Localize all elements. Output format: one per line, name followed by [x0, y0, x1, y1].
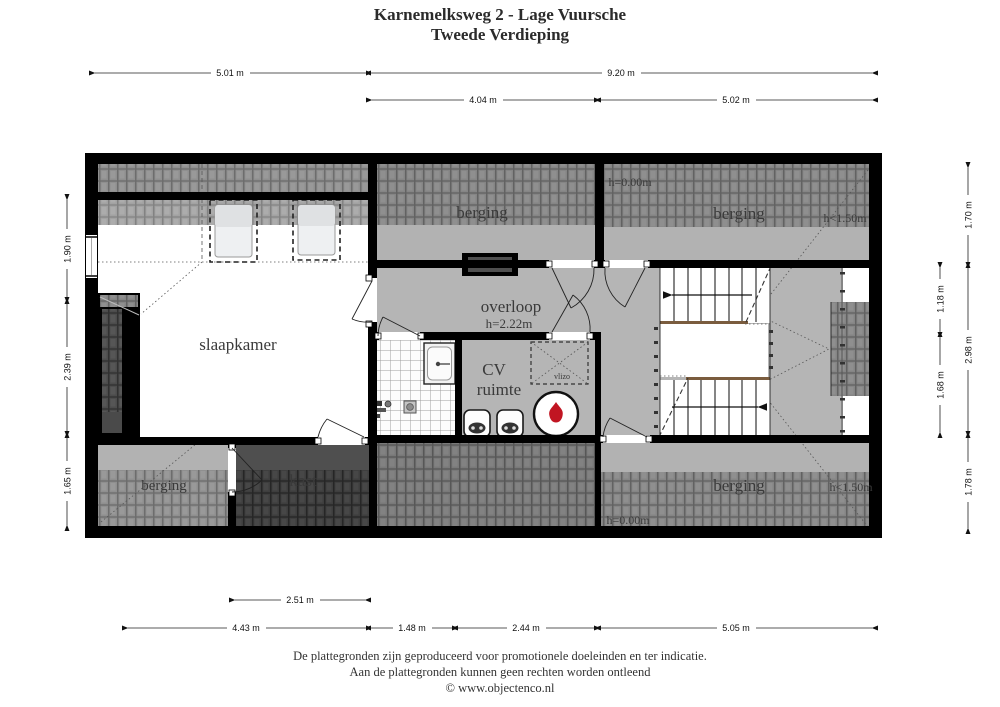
copyright-line: © www.objectenco.nl: [0, 680, 1000, 696]
room-label-berging-bl: berging: [141, 478, 187, 494]
skylight-window-1: [210, 200, 257, 262]
height-label-bottom-h000: h=0.00m: [606, 513, 650, 527]
room-label-berging-top: berging: [456, 203, 508, 222]
room-label-cv-2: ruimte: [477, 380, 521, 399]
floor-drain: [404, 401, 416, 413]
disclaimer: De plattegronden zijn geproduceerd voor …: [0, 648, 1000, 696]
disclaimer-line1: De plattegronden zijn geproduceerd voor …: [0, 648, 1000, 664]
berging-top-right-floor: [604, 227, 869, 260]
dim-rout-170: 1.70 m: [964, 201, 974, 229]
skylight-window-2: [293, 200, 340, 260]
room-label-kast: kast: [289, 471, 317, 490]
roof-band-top-left: [98, 164, 368, 192]
staircase: [654, 266, 773, 437]
dim-rout-298: 2.98 m: [964, 336, 974, 364]
boiler-tank-1: [464, 410, 490, 437]
dim-top-404: 4.04 m: [469, 95, 497, 105]
berging-bl-floor: [98, 445, 228, 470]
dim-left-239: 2.39 m: [63, 353, 73, 381]
left-roof-protrusion: [98, 293, 140, 437]
height-label-top-h000: h=0.00m: [608, 175, 652, 189]
room-label-slaapkamer: slaapkamer: [199, 335, 277, 354]
washbasin: [424, 343, 455, 384]
dim-left-190: 1.90 m: [63, 235, 73, 263]
dim-rout-178: 1.78 m: [964, 468, 974, 496]
dim-bot-251: 2.51 m: [286, 595, 314, 605]
dim-bot-148: 1.48 m: [398, 623, 426, 633]
stair-edge-top: [660, 321, 748, 324]
room-label-berging-top-right: berging: [713, 204, 765, 223]
boiler-tank-2: [497, 410, 523, 437]
dim-top-501: 5.01 m: [216, 68, 244, 78]
stair-edge-bottom: [686, 377, 770, 380]
dim-top-920: 9.20 m: [607, 68, 635, 78]
floorplan-drawing: slaapkamer berging berging h=0.00m h<1.5…: [0, 0, 1000, 707]
room-label-overloop: overloop: [481, 297, 541, 316]
dim-bot-244: 2.44 m: [512, 623, 540, 633]
height-label-top-h150: h<1.50m: [823, 211, 867, 225]
dim-bot-443: 4.43 m: [232, 623, 260, 633]
disclaimer-line2: Aan de plattegronden kunnen geen rechten…: [0, 664, 1000, 680]
roof-strip-bottom-mid: [377, 443, 595, 526]
dim-bot-505: 5.05 m: [722, 623, 750, 633]
berging-br-floor: [601, 443, 869, 472]
floorplan-page: Karnemelksweg 2 - Lage Vuursche Tweede V…: [0, 0, 1000, 707]
dim-top-502: 5.02 m: [722, 95, 750, 105]
room-label-cv-1: CV: [482, 360, 506, 379]
label-vlizo: vlizo: [554, 372, 570, 381]
window-left-wall: [86, 235, 97, 278]
dim-rin-168: 1.68 m: [936, 371, 946, 399]
height-label-bottom-h150: h<1.50m: [829, 480, 873, 494]
kast-floor: [236, 443, 369, 470]
dim-left-165: 1.65 m: [63, 467, 73, 495]
room-label-overloop-height: h=2.22m: [486, 316, 533, 331]
room-label-berging-br: berging: [713, 476, 765, 495]
dim-rin-118: 1.18 m: [936, 285, 946, 313]
